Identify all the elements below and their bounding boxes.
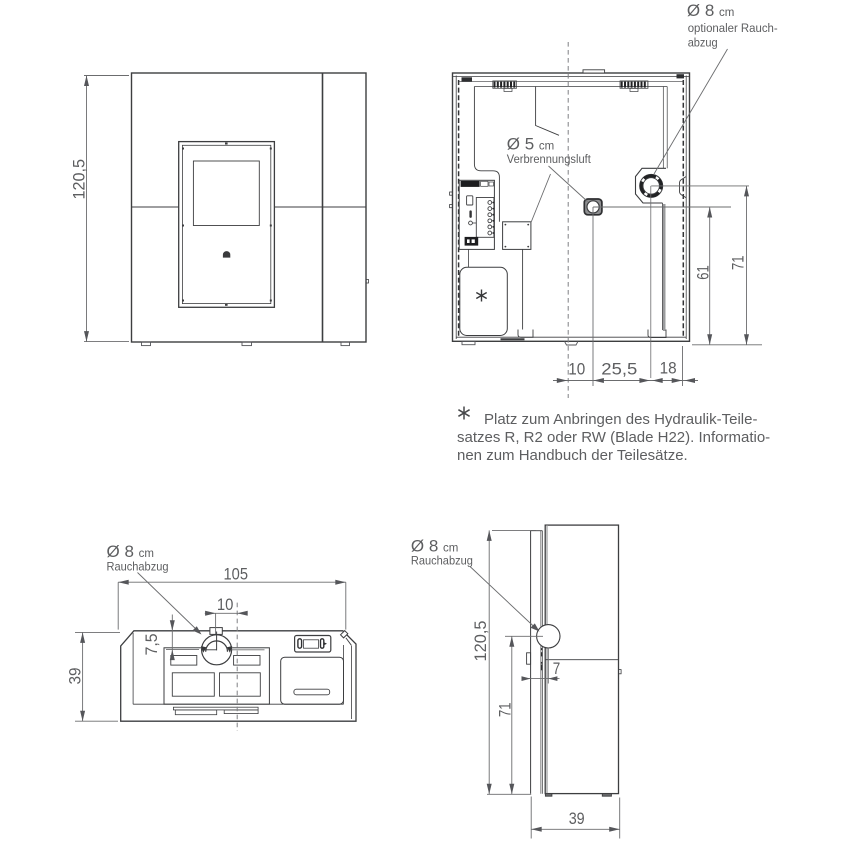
svg-text:optionaler Rauch-: optionaler Rauch- [688,21,778,35]
svg-text:Rauchabzug: Rauchabzug [411,554,473,568]
svg-text:10: 10 [217,596,234,614]
svg-text:25,5: 25,5 [601,361,637,379]
svg-text:Ø 5 cm: Ø 5 cm [507,135,554,154]
svg-text:Ø 8 cm: Ø 8 cm [687,1,734,20]
svg-text:18: 18 [660,360,677,378]
svg-text:120,5: 120,5 [472,621,490,662]
svg-text:10: 10 [568,361,585,379]
svg-text:abzug: abzug [688,36,718,50]
svg-text:Rauchabzug: Rauchabzug [107,560,169,574]
svg-text:39: 39 [569,810,585,828]
svg-text:39: 39 [67,668,85,685]
svg-text:61: 61 [695,265,713,280]
svg-text:7,5: 7,5 [143,633,161,655]
svg-text:105: 105 [224,565,249,583]
svg-text:Verbrennungsluft: Verbrennungsluft [507,152,592,166]
svg-text:nen zum Handbuch der Teilesätz: nen zum Handbuch der Teilesätze. [457,447,688,464]
svg-text:satzes R, R2 oder RW (Blade H2: satzes R, R2 oder RW (Blade H22). Inform… [457,429,770,446]
svg-text:Ø 8 cm: Ø 8 cm [107,542,154,561]
svg-text:71: 71 [729,256,747,271]
svg-text:120,5: 120,5 [71,159,89,200]
svg-text:7: 7 [553,660,561,678]
svg-text:71: 71 [497,703,515,718]
svg-text:Platz zum Anbringen des Hydrau: Platz zum Anbringen des Hydraulik-Teile- [484,411,757,428]
